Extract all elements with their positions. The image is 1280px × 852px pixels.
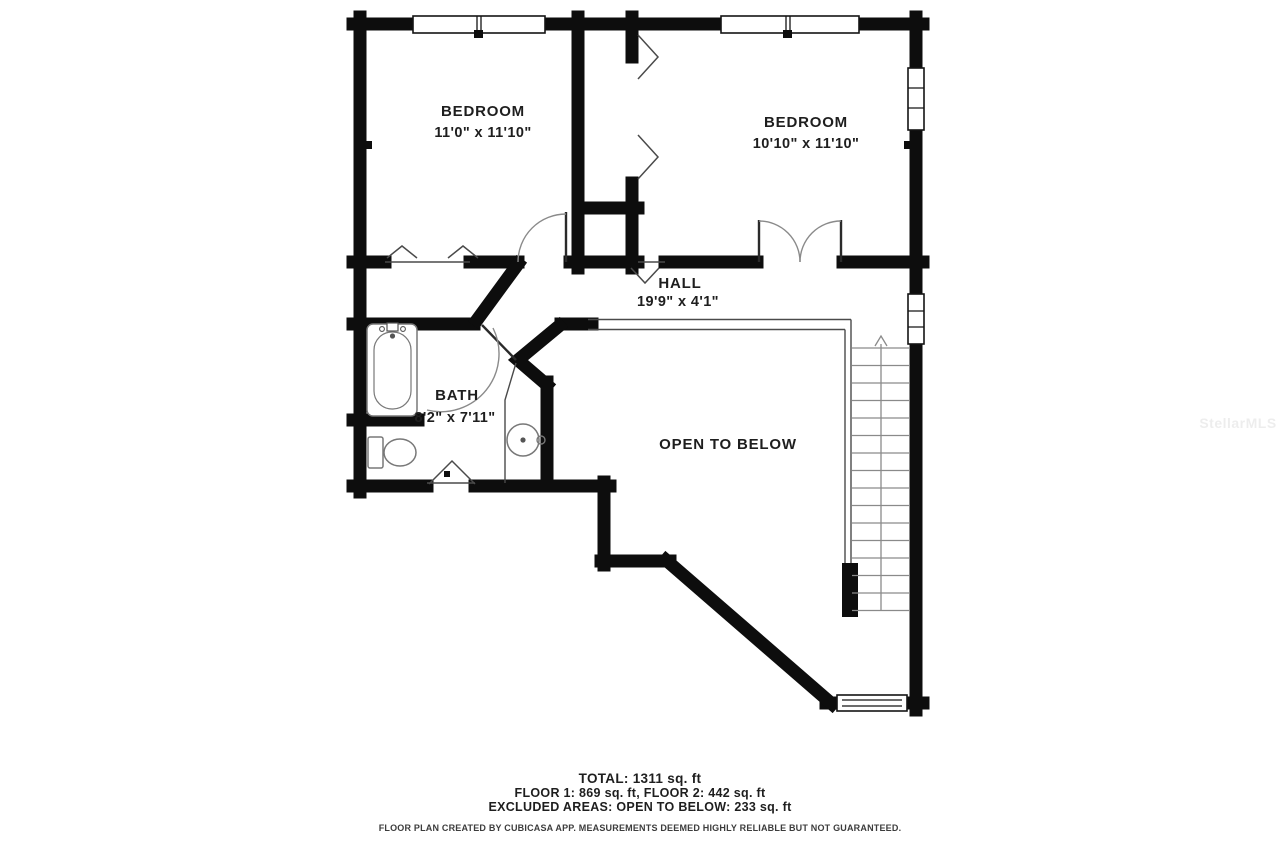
tick-left-wall xyxy=(366,141,372,149)
label-hall: HALL xyxy=(658,275,701,292)
closet-bifold-doors xyxy=(638,35,658,179)
disclaimer-text: FLOOR PLAN CREATED BY CUBICASA APP. MEAS… xyxy=(379,823,902,833)
tub-drain xyxy=(390,333,395,338)
summary-total: TOTAL: 1311 sq. ft xyxy=(579,771,702,786)
floor-plan-svg: BEDROOM 11'0" x 11'10" BEDROOM 10'10" x … xyxy=(0,0,1280,852)
window-bedroom-left-top xyxy=(413,16,545,38)
summary-block: TOTAL: 1311 sq. ft FLOOR 1: 869 sq. ft, … xyxy=(379,771,902,833)
summary-excluded: EXCLUDED AREAS: OPEN TO BELOW: 233 sq. f… xyxy=(488,800,792,814)
open-to-below-edge xyxy=(588,320,858,618)
window-bottom xyxy=(837,695,907,711)
room-labels: BEDROOM 11'0" x 11'10" BEDROOM 10'10" x … xyxy=(414,103,859,453)
label-bath: BATH xyxy=(435,387,479,404)
toilet xyxy=(368,437,416,468)
wall-hall-bath-diagonal xyxy=(477,264,518,320)
otb-edge-top xyxy=(588,320,851,330)
tick-right-wall xyxy=(904,141,910,149)
door-bedroom-left xyxy=(518,212,566,262)
otb-edge-stair-side xyxy=(845,320,851,564)
summary-floors: FLOOR 1: 869 sq. ft, FLOOR 2: 442 sq. ft xyxy=(515,786,766,800)
dims-hall: 19'9" x 4'1" xyxy=(637,294,719,310)
tick-bath-opening xyxy=(444,471,450,477)
dims-bath: 8'2" x 7'11" xyxy=(414,410,495,426)
stair-bottom-wall-stub xyxy=(842,563,858,617)
label-bedroom-right: BEDROOM xyxy=(764,114,848,131)
label-open-to-below: OPEN TO BELOW xyxy=(659,436,797,453)
sink-counter-edge xyxy=(505,363,516,483)
dims-bedroom-left: 11'0" x 11'10" xyxy=(434,125,531,141)
watermark-text: StellarMLS xyxy=(1199,415,1276,431)
tub-faucet xyxy=(387,323,398,331)
staircase xyxy=(852,336,909,611)
bathtub xyxy=(367,323,417,416)
window-right-wall-upper xyxy=(908,68,924,130)
chevron-bath-opening xyxy=(429,461,475,484)
wall-diagonal xyxy=(666,560,832,704)
dims-bedroom-right: 10'10" x 11'10" xyxy=(753,136,859,152)
sink-drain xyxy=(520,437,525,442)
floor-plan-page: BEDROOM 11'0" x 11'10" BEDROOM 10'10" x … xyxy=(0,0,1280,852)
window-bedroom-right-top xyxy=(721,16,859,38)
window-right-wall-lower xyxy=(908,294,924,344)
door-bedroom-right-double xyxy=(759,220,841,262)
label-bedroom-left: BEDROOM xyxy=(441,103,525,120)
